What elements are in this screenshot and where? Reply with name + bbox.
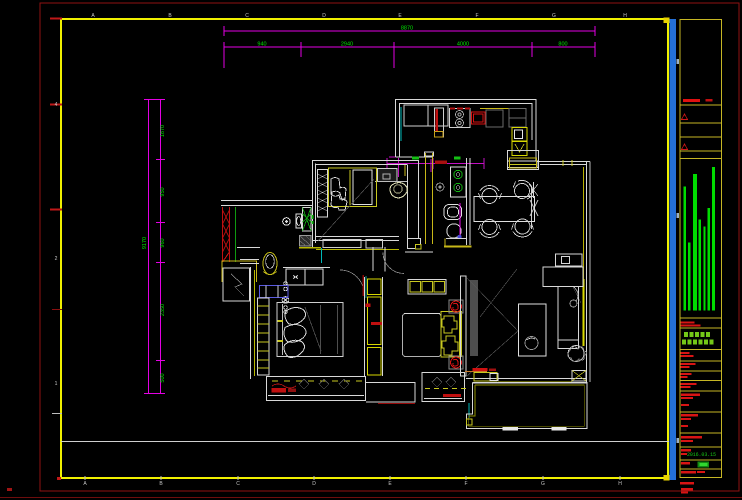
svg-text:2350: 2350 bbox=[160, 304, 166, 316]
svg-text:B: B bbox=[168, 13, 172, 19]
svg-text:C: C bbox=[236, 481, 240, 487]
svg-text:1: 1 bbox=[55, 381, 58, 387]
svg-text:950: 950 bbox=[160, 187, 166, 196]
svg-text:A: A bbox=[91, 13, 95, 19]
svg-text:C: C bbox=[245, 13, 249, 19]
svg-text:H: H bbox=[623, 13, 627, 19]
svg-text:9170: 9170 bbox=[142, 237, 148, 249]
svg-text:2940: 2940 bbox=[341, 42, 353, 48]
svg-text:500: 500 bbox=[160, 373, 166, 382]
svg-text:960: 960 bbox=[160, 238, 166, 247]
svg-text:8870: 8870 bbox=[401, 26, 413, 32]
svg-text:H: H bbox=[618, 481, 622, 487]
svg-text:4000: 4000 bbox=[457, 42, 469, 48]
svg-text:B: B bbox=[159, 481, 163, 487]
svg-text:A: A bbox=[83, 481, 87, 487]
svg-text:D: D bbox=[322, 13, 326, 19]
svg-text:E: E bbox=[388, 481, 392, 487]
svg-text:F: F bbox=[475, 13, 478, 19]
svg-text:1870: 1870 bbox=[160, 125, 166, 137]
svg-text:F: F bbox=[464, 481, 467, 487]
svg-text:800: 800 bbox=[558, 42, 567, 48]
svg-text:G: G bbox=[541, 481, 545, 487]
svg-text:4: 4 bbox=[55, 102, 58, 108]
svg-text:G: G bbox=[552, 13, 556, 19]
svg-text:2016.03.15: 2016.03.15 bbox=[687, 452, 716, 458]
svg-text:2: 2 bbox=[55, 256, 58, 262]
svg-text:E: E bbox=[398, 13, 402, 19]
svg-text:940: 940 bbox=[257, 42, 266, 48]
svg-text:D: D bbox=[312, 481, 316, 487]
